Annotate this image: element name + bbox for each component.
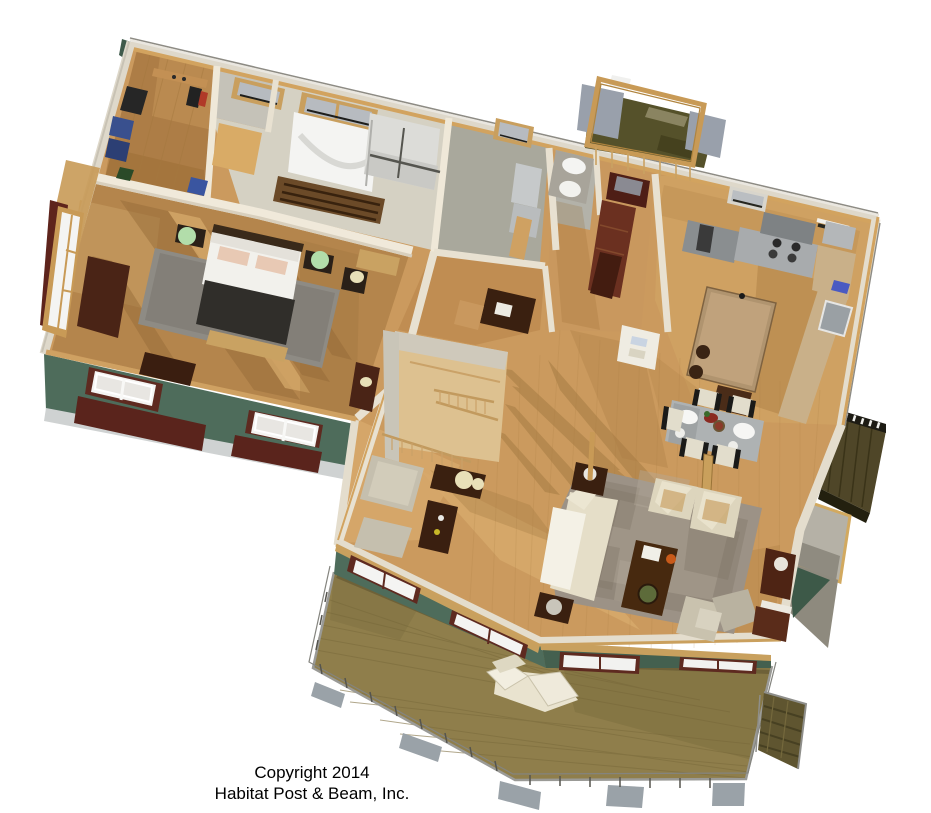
- svg-text:Habitat Post & Beam, Inc.: Habitat Post & Beam, Inc.: [215, 784, 410, 803]
- svg-text:Copyright 2014: Copyright 2014: [254, 763, 369, 782]
